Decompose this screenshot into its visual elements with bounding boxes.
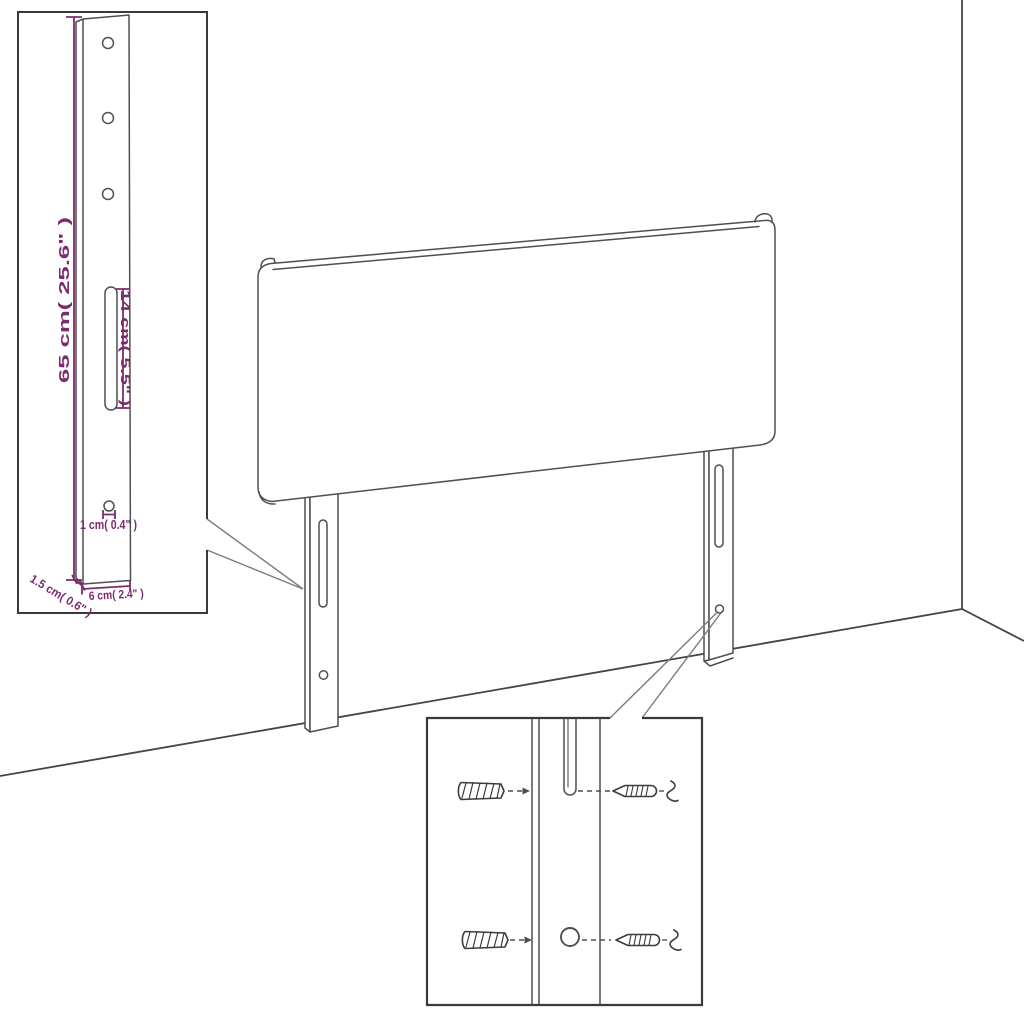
dimension-slot-label: 14 cm( 5.5" ) [118,290,133,406]
left-leg-front-face [310,488,338,732]
detail-leg-side-face [76,19,83,584]
headboard-panel [258,214,775,504]
wall-plug-arrow-lower [525,937,533,944]
wall-plug-icon [458,783,504,800]
floor-line-left [0,609,962,776]
panel-outline [258,220,775,501]
callout-line-left [610,613,717,718]
leg-detail-inset: 65 cm( 25.6" ) 14 cm( 5.5" ) 1 cm( 0.4" … [18,12,207,620]
screw-coil-icon [670,930,681,950]
detail-leg-hole-1 [103,38,114,49]
dimension-width-label: 6 cm( 2.4" ) [88,586,144,603]
detail-leg-hole-3 [103,189,114,200]
right-leg-front-face [709,440,733,660]
wall-plug-arrow-upper [523,788,531,795]
headboard-right-leg [704,440,733,666]
screw-coil-icon [667,781,678,801]
callout-line-bottom [207,550,303,589]
mounting-leg-strip [532,719,600,1004]
callout-left-inset [207,519,303,589]
mounting-leg-edges [532,719,600,1004]
dimension-slot: 14 cm( 5.5" ) [116,289,133,408]
screw-icon [616,930,681,950]
floor-line-right [962,609,1024,641]
screw-icon [613,781,678,801]
callout-line-top [207,519,303,589]
detail-leg-slot [105,287,117,410]
dimension-height-label: 65 cm( 25.6" ) [56,217,73,383]
headboard-left-leg [305,488,338,732]
detail-leg-bottom-hole [104,501,114,511]
dimension-hole-label: 1 cm( 0.4" ) [80,518,137,532]
mounting-leg-hole [561,928,579,946]
diagram-canvas: 65 cm( 25.6" ) 14 cm( 5.5" ) 1 cm( 0.4" … [0,0,1024,1024]
dimension-height: 65 cm( 25.6" ) [56,17,82,580]
detail-leg-hole-2 [103,113,114,124]
dimension-hole: 1 cm( 0.4" ) [80,510,137,532]
wall-plug-icon [462,932,508,949]
mounting-detail-inset [427,718,702,1005]
mounting-leg-slot [564,719,576,795]
headboard-diagram: 65 cm( 25.6" ) 14 cm( 5.5" ) 1 cm( 0.4" … [0,0,1024,1024]
